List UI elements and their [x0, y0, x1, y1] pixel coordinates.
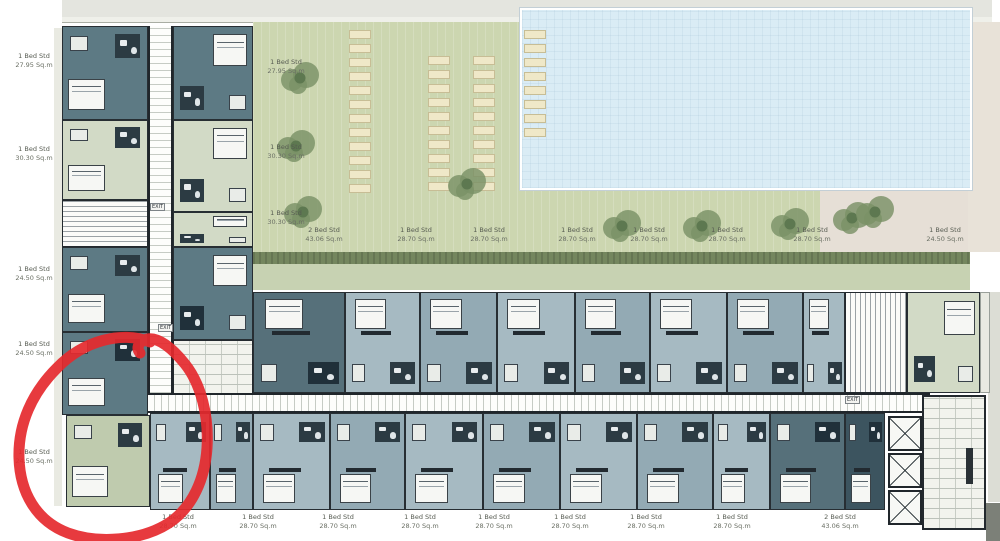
wardrobe-icon: [229, 188, 246, 202]
unit: [253, 292, 345, 393]
bathroom-icon: [772, 362, 797, 384]
bed-icon: [213, 128, 247, 159]
bed-icon: [68, 79, 105, 110]
wardrobe-icon: [582, 364, 595, 382]
unit-area-text: 30.30 Sq.m: [256, 152, 316, 161]
unit-area-text: 28.70 Sq.m: [464, 522, 524, 531]
unit-area-text: 24.50 Sq.m: [915, 235, 975, 244]
balcony-strip: [980, 292, 990, 393]
unit-area-text: 24.50 Sq.m: [4, 457, 64, 466]
bed-icon: [340, 474, 372, 503]
unit-area-text: 28.70 Sq.m: [459, 235, 519, 244]
unit-type-text: 1 Bed Std: [702, 513, 762, 522]
bed-icon: [944, 301, 975, 335]
exit-label: EXIT: [150, 203, 165, 211]
room-plate: [361, 331, 392, 335]
room-plate: [346, 468, 377, 472]
exit-label: EXIT: [845, 396, 860, 404]
unit: [637, 413, 713, 510]
unit-type-text: 1 Bed Std: [464, 513, 524, 522]
unit-area-text: 28.70 Sq.m: [540, 522, 600, 531]
bathroom-icon: [236, 422, 250, 443]
bed-icon: [780, 474, 812, 503]
bed-icon: [213, 255, 247, 286]
wardrobe-icon: [352, 364, 365, 382]
unit-type-text: 1 Bed Std: [4, 448, 64, 457]
bed-icon: [647, 474, 679, 503]
unit: [62, 247, 148, 332]
unit-area-text: 27.95 Sq.m: [256, 67, 316, 76]
unit-label: 1 Bed Std27.95 Sq.m: [4, 52, 64, 70]
unit: [173, 120, 253, 212]
unit-label: 1 Bed Std28.70 Sq.m: [540, 513, 600, 531]
unit: [650, 292, 727, 393]
unit: [173, 26, 253, 120]
room-plate: [653, 468, 684, 472]
room-plate: [499, 468, 531, 472]
bathroom-icon: [452, 422, 478, 443]
unit-type-text: 1 Bed Std: [4, 52, 64, 61]
bathroom-icon: [529, 422, 555, 443]
wardrobe-icon: [412, 424, 426, 441]
wardrobe-icon: [156, 424, 166, 441]
bathroom-icon: [115, 255, 140, 277]
wardrobe-icon: [567, 424, 581, 441]
unit-label: 2 Bed Std43.06 Sq.m: [294, 226, 354, 244]
unit: [62, 332, 148, 415]
unit-label: 1 Bed Std28.70 Sq.m: [148, 513, 208, 531]
bed-icon: [72, 466, 108, 497]
unit-type-text: 1 Bed Std: [390, 513, 450, 522]
unit-type-text: 1 Bed Std: [915, 226, 975, 235]
unit-area-text: 43.06 Sq.m: [810, 522, 870, 531]
corridor-horizontal: [120, 393, 930, 413]
bed-icon: [216, 474, 236, 503]
unit-label: 2 Bed Std43.06 Sq.m: [810, 513, 870, 531]
bed-icon: [265, 299, 304, 329]
bathroom-icon: [869, 422, 882, 443]
bathroom-icon: [375, 422, 400, 443]
unit-type-text: 1 Bed Std: [308, 513, 368, 522]
room-plate: [219, 468, 236, 472]
bathroom-icon: [115, 127, 140, 147]
unit: [845, 413, 885, 510]
unit: [345, 292, 420, 393]
unit-label: 1 Bed Std28.70 Sq.m: [547, 226, 607, 244]
bed-icon: [68, 165, 105, 192]
bathroom-icon: [606, 422, 632, 443]
unit-type-text: 1 Bed Std: [228, 513, 288, 522]
unit-area-text: 28.70 Sq.m: [547, 235, 607, 244]
unit-label: 1 Bed Std28.70 Sq.m: [464, 513, 524, 531]
wardrobe-icon: [807, 364, 814, 382]
unit-type-text: 1 Bed Std: [540, 513, 600, 522]
bathroom-icon: [180, 179, 203, 202]
bathroom-icon: [180, 306, 203, 330]
unit: [713, 413, 770, 510]
unit-area-text: 24.50 Sq.m: [4, 349, 64, 358]
unit-label: 1 Bed Std24.50 Sq.m: [4, 340, 64, 358]
wardrobe-icon: [490, 424, 504, 441]
unit: [62, 26, 148, 120]
unit-type-text: 1 Bed Std: [4, 265, 64, 274]
bed-icon: [68, 378, 105, 406]
bathroom-icon: [696, 362, 722, 384]
bathroom-icon: [914, 356, 935, 382]
bathroom-icon: [308, 362, 339, 384]
unit-type-text: 1 Bed Std: [459, 226, 519, 235]
bed-icon: [493, 474, 525, 503]
bed-icon: [355, 299, 387, 329]
elevator-2: [888, 453, 922, 488]
wardrobe-icon: [70, 256, 88, 269]
unit: [803, 292, 845, 393]
unit-area-text: 28.70 Sq.m: [228, 522, 288, 531]
elevator-3: [888, 490, 922, 525]
unit-label: 1 Bed Std28.70 Sq.m: [228, 513, 288, 531]
bed-icon: [737, 299, 769, 329]
unit-label: 1 Bed Std28.70 Sq.m: [619, 226, 679, 244]
wardrobe-icon: [260, 424, 274, 441]
unit-label: 1 Bed Std28.70 Sq.m: [702, 513, 762, 531]
room-plate: [854, 468, 870, 472]
wardrobe-icon: [229, 95, 246, 110]
unit: [210, 413, 253, 510]
unit: [420, 292, 497, 393]
bathroom-icon: [815, 422, 840, 443]
room-plate: [272, 331, 310, 335]
elevator-1: [888, 416, 922, 451]
bed-icon: [263, 474, 295, 503]
unit-label: 1 Bed Std28.70 Sq.m: [390, 513, 450, 531]
unit-label: 1 Bed Std28.70 Sq.m: [697, 226, 757, 244]
unit-label: 1 Bed Std28.70 Sq.m: [782, 226, 842, 244]
unit-area-text: 27.95 Sq.m: [4, 61, 64, 70]
bathroom-icon: [180, 234, 203, 243]
unit-area-text: 24.50 Sq.m: [4, 274, 64, 283]
wardrobe-icon: [777, 424, 790, 441]
bed-icon: [213, 34, 247, 65]
unit: [483, 413, 560, 510]
wardrobe-icon: [70, 129, 88, 141]
unit-label: 1 Bed Std24.50 Sq.m: [4, 265, 64, 283]
unit: [575, 292, 650, 393]
bottom-right-gray-bar: [986, 503, 1000, 541]
unit: [770, 413, 845, 510]
floor-plan-canvas: 1 Bed Std27.95 Sq.m1 Bed Std30.30 Sq.m1 …: [0, 0, 1000, 541]
room-plate: [163, 468, 187, 472]
bathroom-icon: [682, 422, 707, 443]
room-plate: [725, 468, 748, 472]
wardrobe-icon: [504, 364, 518, 382]
unit-type-text: 1 Bed Std: [619, 226, 679, 235]
entry-dark-bar: [966, 448, 973, 484]
wardrobe-icon: [337, 424, 350, 441]
unit: [173, 247, 253, 340]
wardrobe-icon: [718, 424, 728, 441]
bathroom-icon: [747, 422, 766, 443]
unit-label: 1 Bed Std24.50 Sq.m: [4, 448, 64, 466]
unit: [253, 413, 330, 510]
bed-icon: [721, 474, 745, 503]
wardrobe-icon: [70, 36, 88, 51]
room-plate: [576, 468, 608, 472]
unit-area-text: 28.70 Sq.m: [308, 522, 368, 531]
unit-type-text: 1 Bed Std: [256, 209, 316, 218]
entry-lobby-tiles: [922, 395, 986, 530]
room-plate: [269, 468, 301, 472]
room-plate: [786, 468, 817, 472]
bed-icon: [660, 299, 692, 329]
unit: [727, 292, 803, 393]
bed-icon: [430, 299, 462, 329]
unit-label: 1 Bed Std28.70 Sq.m: [616, 513, 676, 531]
unit-type-text: 1 Bed Std: [782, 226, 842, 235]
bed-icon: [809, 299, 829, 329]
unit: [62, 120, 148, 200]
unit-area-text: 28.70 Sq.m: [697, 235, 757, 244]
room-plate: [421, 468, 453, 472]
unit-area-text: 28.70 Sq.m: [782, 235, 842, 244]
wardrobe-icon: [261, 364, 277, 382]
stairwell-right: [845, 292, 907, 393]
unit-area-text: 43.06 Sq.m: [294, 235, 354, 244]
bathroom-icon: [180, 86, 203, 110]
wardrobe-icon: [70, 341, 88, 354]
unit-area-text: 28.70 Sq.m: [616, 522, 676, 531]
unit: [66, 415, 150, 507]
unit-area-text: 28.70 Sq.m: [702, 522, 762, 531]
unit-area-text: 30.30 Sq.m: [4, 154, 64, 163]
bathroom-icon: [620, 362, 645, 384]
corridor-vertical: [148, 26, 173, 413]
wardrobe-icon: [229, 237, 246, 242]
wardrobe-icon: [734, 364, 747, 382]
tree-icon: [448, 168, 486, 200]
unit-type-text: 1 Bed Std: [4, 340, 64, 349]
unit-label: 1 Bed Std27.95 Sq.m: [256, 58, 316, 76]
wardrobe-icon: [958, 366, 974, 382]
unit: [173, 212, 253, 247]
unit-type-text: 1 Bed Std: [256, 143, 316, 152]
wardrobe-icon: [849, 424, 856, 441]
unit-type-text: 1 Bed Std: [616, 513, 676, 522]
unit-type-text: 1 Bed Std: [148, 513, 208, 522]
exit-label: EXIT: [158, 324, 173, 332]
room-plate: [513, 331, 545, 335]
unit-area-text: 28.70 Sq.m: [619, 235, 679, 244]
wardrobe-icon: [427, 364, 441, 382]
room-plate: [812, 331, 829, 335]
bathroom-icon: [186, 422, 206, 443]
unit-type-text: 1 Bed Std: [547, 226, 607, 235]
unit-label: 1 Bed Std30.30 Sq.m: [256, 209, 316, 227]
bed-icon: [415, 474, 448, 503]
wardrobe-icon: [229, 315, 246, 330]
bathroom-icon: [390, 362, 415, 384]
tree-icon: [856, 196, 894, 228]
wardrobe-icon: [74, 425, 92, 439]
unit: [497, 292, 575, 393]
bathroom-icon: [118, 423, 143, 446]
unit-label: 1 Bed Std24.50 Sq.m: [915, 226, 975, 244]
unit: [150, 413, 210, 510]
bed-icon: [68, 294, 105, 322]
unit-label: 1 Bed Std28.70 Sq.m: [459, 226, 519, 244]
unit-label: 1 Bed Std30.30 Sq.m: [256, 143, 316, 161]
unit-label: 1 Bed Std30.30 Sq.m: [4, 145, 64, 163]
bed-icon: [158, 474, 183, 503]
wardrobe-icon: [214, 424, 221, 441]
unit: [405, 413, 483, 510]
unit-label: 1 Bed Std28.70 Sq.m: [308, 513, 368, 531]
stairwell-left: [62, 200, 148, 247]
bed-icon: [213, 216, 247, 227]
bathroom-icon: [299, 422, 325, 443]
bathroom-icon: [115, 34, 140, 58]
bathroom-icon: [115, 339, 140, 360]
bathroom-icon: [544, 362, 570, 384]
unit-type-text: 1 Bed Std: [256, 58, 316, 67]
unit-type-text: 1 Bed Std: [697, 226, 757, 235]
bathroom-icon: [828, 362, 842, 384]
room-plate: [743, 331, 774, 335]
room-plate: [666, 331, 698, 335]
unit-area-text: 28.70 Sq.m: [148, 522, 208, 531]
unit-type-text: 2 Bed Std: [294, 226, 354, 235]
unit: [907, 292, 980, 393]
bed-icon: [851, 474, 871, 503]
unit-area-text: 28.70 Sq.m: [390, 522, 450, 531]
unit-label: 1 Bed Std28.70 Sq.m: [386, 226, 446, 244]
unit-type-text: 1 Bed Std: [386, 226, 446, 235]
unit-type-text: 2 Bed Std: [810, 513, 870, 522]
wardrobe-icon: [644, 424, 657, 441]
junction-lobby-tiles: [173, 340, 253, 395]
unit-type-text: 1 Bed Std: [4, 145, 64, 154]
room-plate: [591, 331, 622, 335]
unit-area-text: 28.70 Sq.m: [386, 235, 446, 244]
bed-icon: [507, 299, 540, 329]
bed-icon: [570, 474, 602, 503]
wardrobe-icon: [657, 364, 671, 382]
room-plate: [436, 331, 468, 335]
unit: [560, 413, 637, 510]
unit: [330, 413, 405, 510]
bed-icon: [585, 299, 617, 329]
bathroom-icon: [466, 362, 492, 384]
